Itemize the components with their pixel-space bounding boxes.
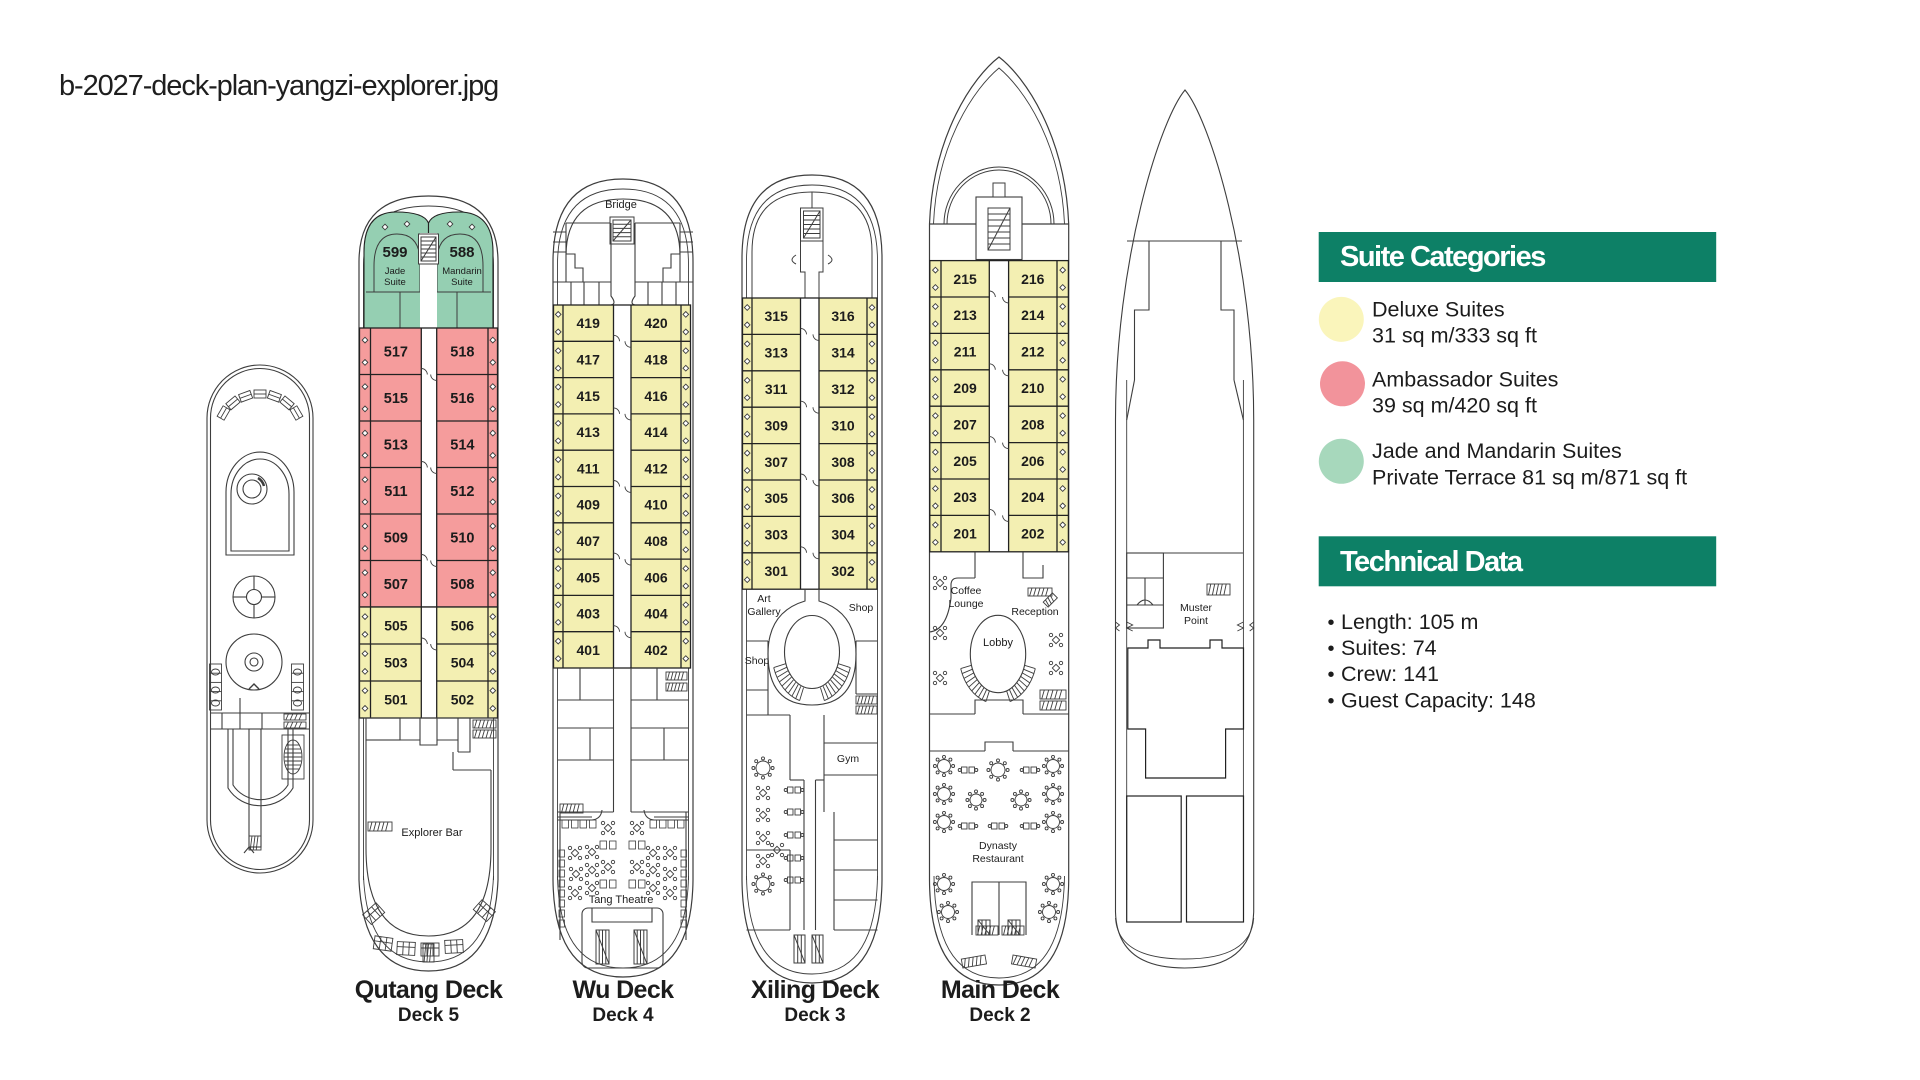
svg-text:Length: 105 m: Length: 105 m	[1341, 610, 1478, 634]
svg-text:411: 411	[577, 460, 600, 476]
svg-text:Main Deck: Main Deck	[941, 976, 1060, 1004]
svg-text:414: 414	[644, 424, 668, 440]
svg-text:Suite: Suite	[451, 277, 473, 288]
svg-text:204: 204	[1021, 489, 1045, 505]
svg-text:Art: Art	[757, 593, 771, 605]
svg-text:Tang Theatre: Tang Theatre	[589, 894, 654, 906]
svg-text:Shop: Shop	[745, 655, 770, 667]
svg-text:418: 418	[644, 352, 668, 368]
svg-text:310: 310	[831, 417, 855, 433]
svg-text:•: •	[1328, 664, 1335, 686]
svg-text:206: 206	[1021, 453, 1045, 469]
svg-text:599: 599	[382, 244, 407, 261]
svg-text:Dynasty: Dynasty	[979, 840, 1018, 852]
svg-text:212: 212	[1021, 344, 1045, 360]
svg-text:Gym: Gym	[837, 753, 859, 765]
svg-text:203: 203	[953, 489, 977, 505]
svg-text:•: •	[1328, 612, 1335, 634]
svg-text:401: 401	[577, 642, 601, 658]
svg-text:Jade: Jade	[385, 266, 406, 277]
svg-text:517: 517	[384, 345, 408, 361]
svg-text:Coffee: Coffee	[951, 585, 982, 597]
svg-text:Deck 4: Deck 4	[592, 1005, 654, 1026]
svg-text:Guest Capacity: 148: Guest Capacity: 148	[1341, 689, 1536, 713]
svg-text:201: 201	[953, 526, 977, 542]
svg-text:•: •	[1328, 691, 1335, 713]
svg-text:Private Terrace 81 sq m/871 sq: Private Terrace 81 sq m/871 sq ft	[1372, 465, 1687, 489]
svg-text:303: 303	[765, 527, 789, 543]
svg-text:502: 502	[451, 692, 475, 708]
svg-text:205: 205	[953, 453, 977, 469]
svg-text:510: 510	[450, 531, 474, 547]
svg-text:516: 516	[450, 391, 474, 407]
svg-text:Point: Point	[1184, 615, 1208, 627]
svg-text:412: 412	[644, 460, 668, 476]
svg-text:213: 213	[953, 307, 977, 323]
svg-text:413: 413	[577, 424, 601, 440]
svg-text:404: 404	[644, 606, 668, 622]
svg-text:513: 513	[384, 438, 408, 454]
svg-text:315: 315	[765, 308, 789, 324]
svg-text:507: 507	[384, 577, 408, 593]
svg-text:309: 309	[765, 417, 789, 433]
svg-text:207: 207	[953, 416, 977, 432]
svg-text:Crew: 141: Crew: 141	[1341, 662, 1439, 686]
svg-text:408: 408	[644, 533, 668, 549]
svg-text:511: 511	[384, 484, 407, 500]
svg-text:Jade and Mandarin Suites: Jade and Mandarin Suites	[1372, 439, 1622, 463]
svg-text:501: 501	[384, 692, 408, 708]
svg-text:301: 301	[765, 563, 789, 579]
svg-text:313: 313	[765, 345, 789, 361]
svg-text:415: 415	[577, 388, 601, 404]
svg-text:409: 409	[577, 497, 601, 513]
svg-text:Technical Data: Technical Data	[1340, 546, 1524, 578]
svg-text:416: 416	[644, 388, 668, 404]
svg-text:Suite Categories: Suite Categories	[1340, 241, 1545, 273]
svg-text:Mandarin: Mandarin	[442, 266, 482, 277]
svg-text:Restaurant: Restaurant	[972, 853, 1023, 865]
svg-text:503: 503	[384, 655, 408, 671]
svg-text:504: 504	[451, 655, 475, 671]
svg-text:306: 306	[831, 490, 855, 506]
svg-text:Suite: Suite	[384, 277, 406, 288]
svg-text:39 sq m/420 sq ft: 39 sq m/420 sq ft	[1372, 394, 1537, 418]
svg-text:Qutang Deck: Qutang Deck	[355, 976, 503, 1004]
svg-text:b-2027-deck-plan-yangzi-explor: b-2027-deck-plan-yangzi-explorer.jpg	[59, 70, 498, 102]
svg-text:Explorer Bar: Explorer Bar	[401, 827, 462, 839]
svg-text:512: 512	[450, 484, 474, 500]
svg-text:Gallery: Gallery	[747, 606, 781, 618]
svg-text:Lobby: Lobby	[983, 637, 1013, 649]
svg-text:Reception: Reception	[1011, 606, 1058, 618]
svg-text:304: 304	[831, 527, 855, 543]
svg-text:518: 518	[450, 345, 474, 361]
svg-text:211: 211	[954, 344, 977, 360]
svg-text:508: 508	[450, 577, 474, 593]
svg-text:405: 405	[577, 569, 601, 585]
svg-text:305: 305	[765, 490, 789, 506]
svg-text:419: 419	[577, 315, 601, 331]
svg-text:209: 209	[953, 380, 977, 396]
svg-text:Deluxe Suites: Deluxe Suites	[1372, 297, 1505, 321]
svg-text:31 sq m/333 sq ft: 31 sq m/333 sq ft	[1372, 324, 1537, 348]
svg-text:Ambassador Suites: Ambassador Suites	[1372, 367, 1558, 391]
svg-text:Bridge: Bridge	[605, 199, 637, 211]
svg-text:307: 307	[765, 454, 789, 470]
svg-text:410: 410	[644, 497, 668, 513]
svg-text:Shop: Shop	[849, 602, 874, 614]
svg-text:Muster: Muster	[1180, 602, 1213, 614]
svg-text:403: 403	[577, 606, 601, 622]
svg-text:312: 312	[831, 381, 855, 397]
svg-text:314: 314	[831, 345, 855, 361]
svg-text:Wu Deck: Wu Deck	[573, 976, 675, 1004]
svg-text:216: 216	[1021, 271, 1045, 287]
svg-text:311: 311	[765, 381, 788, 397]
svg-text:514: 514	[450, 438, 474, 454]
svg-text:208: 208	[1021, 416, 1045, 432]
svg-text:Xiling Deck: Xiling Deck	[751, 976, 880, 1004]
svg-text:420: 420	[644, 315, 668, 331]
svg-text:•: •	[1328, 638, 1335, 660]
svg-text:588: 588	[449, 244, 474, 261]
svg-text:316: 316	[831, 308, 855, 324]
svg-text:210: 210	[1021, 380, 1045, 396]
svg-text:302: 302	[831, 563, 855, 579]
svg-text:402: 402	[644, 642, 668, 658]
svg-text:417: 417	[577, 352, 601, 368]
svg-text:406: 406	[644, 569, 668, 585]
svg-text:308: 308	[831, 454, 855, 470]
svg-text:214: 214	[1021, 307, 1045, 323]
svg-text:Suites: 74: Suites: 74	[1341, 636, 1437, 660]
svg-text:202: 202	[1021, 526, 1045, 542]
svg-text:509: 509	[384, 531, 408, 547]
svg-text:Deck 5: Deck 5	[398, 1005, 460, 1026]
svg-text:Deck 2: Deck 2	[969, 1005, 1030, 1026]
svg-text:515: 515	[384, 391, 408, 407]
svg-text:215: 215	[953, 271, 977, 287]
svg-text:Deck 3: Deck 3	[784, 1005, 845, 1026]
svg-text:Lounge: Lounge	[948, 598, 983, 610]
svg-text:407: 407	[577, 533, 601, 549]
svg-text:505: 505	[384, 618, 408, 634]
svg-text:506: 506	[451, 618, 475, 634]
